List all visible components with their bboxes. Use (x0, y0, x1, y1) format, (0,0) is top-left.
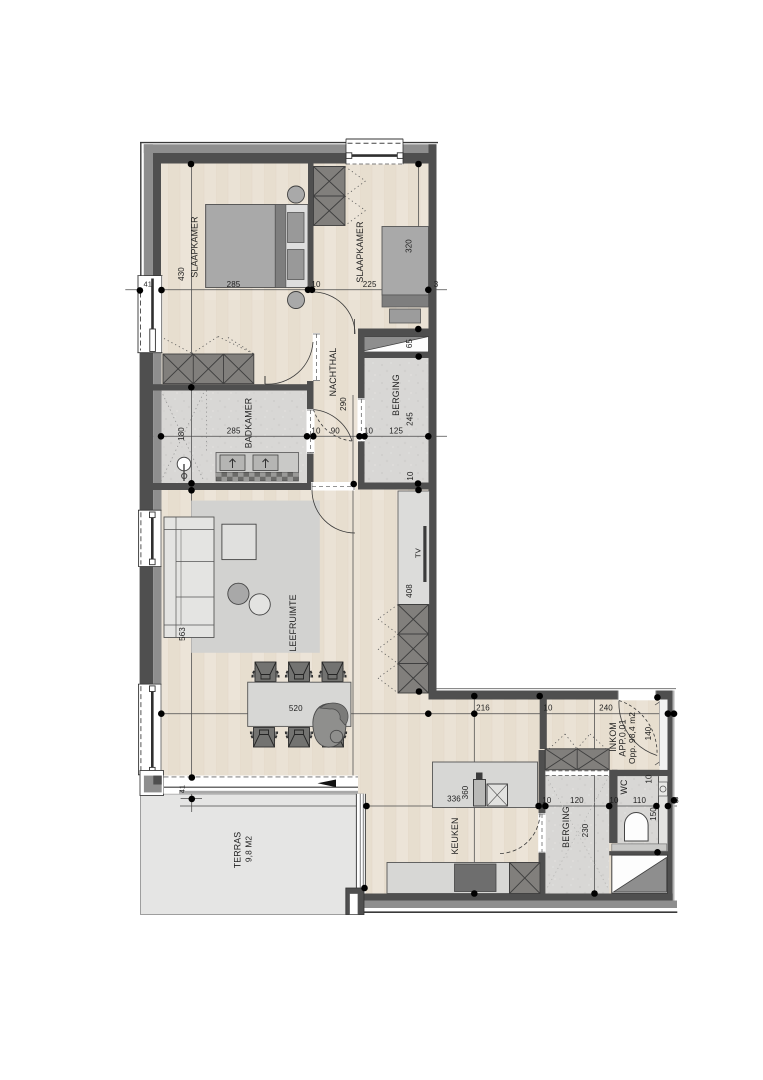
svg-text:120: 120 (570, 796, 584, 805)
svg-text:BADKAMER: BADKAMER (244, 398, 254, 449)
svg-text:10: 10 (609, 796, 619, 805)
svg-text:10: 10 (311, 280, 321, 289)
svg-text:10: 10 (311, 426, 321, 435)
svg-text:230: 230 (581, 823, 590, 837)
svg-text:41: 41 (143, 279, 152, 288)
svg-text:563: 563 (178, 627, 187, 641)
svg-text:245: 245 (406, 412, 415, 426)
svg-text:41: 41 (178, 785, 187, 793)
svg-text:10: 10 (542, 796, 552, 805)
svg-text:10: 10 (543, 704, 553, 713)
svg-text:110: 110 (633, 796, 647, 805)
svg-text:216: 216 (476, 704, 490, 713)
svg-text:520: 520 (289, 704, 303, 713)
svg-text:430: 430 (177, 267, 186, 281)
svg-text:408: 408 (405, 584, 414, 598)
svg-text:180: 180 (177, 427, 186, 441)
svg-text:140: 140 (644, 726, 653, 740)
svg-text:Opp. 98,4 m2: Opp. 98,4 m2 (627, 712, 637, 764)
svg-text:320: 320 (405, 239, 414, 253)
svg-text:65: 65 (405, 339, 414, 349)
svg-text:125: 125 (389, 426, 403, 435)
svg-text:10: 10 (645, 774, 654, 784)
svg-text:225: 225 (363, 280, 377, 289)
svg-text:360: 360 (461, 785, 470, 799)
svg-text:WC: WC (619, 779, 629, 794)
svg-text:336: 336 (447, 795, 461, 804)
svg-text:BERGING: BERGING (561, 806, 571, 848)
svg-text:290: 290 (339, 397, 348, 411)
svg-text:TERRAS: TERRAS (233, 832, 243, 869)
svg-text:TV: TV (414, 548, 423, 558)
svg-text:INKOM: INKOM (608, 722, 618, 752)
svg-text:150: 150 (649, 807, 658, 821)
svg-text:SLAAPKAMER: SLAAPKAMER (190, 216, 200, 277)
svg-text:90: 90 (331, 426, 341, 435)
svg-text:LEEFRUIMTE: LEEFRUIMTE (288, 594, 298, 651)
svg-text:3: 3 (434, 280, 439, 289)
svg-text:KEUKEN: KEUKEN (450, 817, 460, 854)
svg-text:285: 285 (227, 280, 241, 289)
svg-text:APP.0.01: APP.0.01 (618, 719, 628, 756)
svg-text:10: 10 (406, 471, 415, 481)
svg-text:BERGING: BERGING (391, 374, 401, 416)
svg-text:3: 3 (674, 796, 679, 805)
svg-text:285: 285 (227, 426, 241, 435)
svg-text:240: 240 (599, 704, 613, 713)
svg-text:NACHTHAL: NACHTHAL (328, 348, 338, 397)
svg-text:9,8 M2: 9,8 M2 (244, 836, 254, 863)
svg-text:SLAAPKAMER: SLAAPKAMER (355, 221, 365, 282)
svg-text:10: 10 (364, 426, 374, 435)
